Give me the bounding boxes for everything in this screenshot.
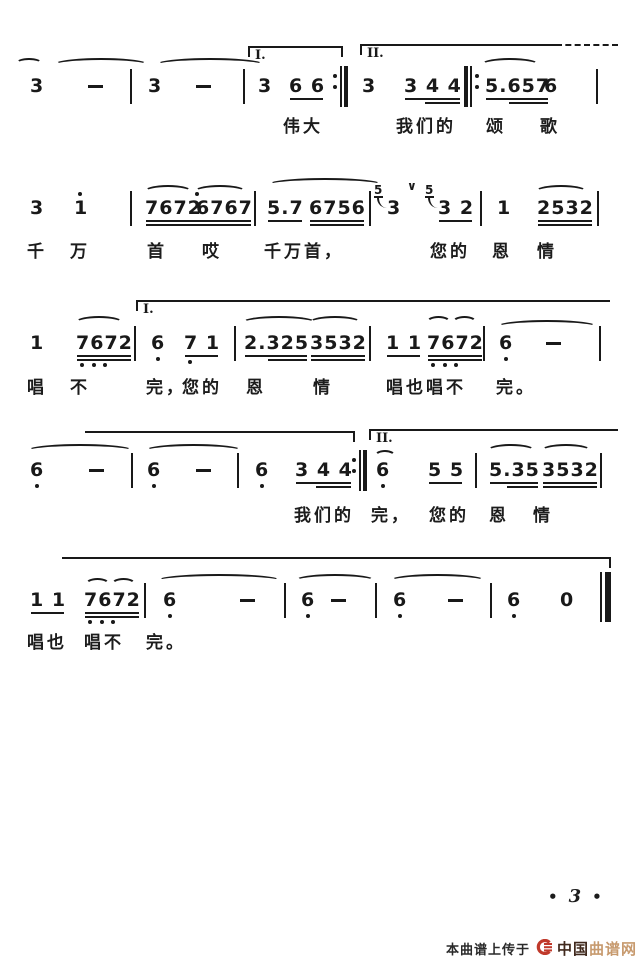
slur — [390, 574, 485, 587]
note: 6 — [147, 460, 161, 481]
note: 6 — [499, 333, 513, 354]
note: 6 — [393, 590, 407, 611]
barline — [475, 453, 477, 488]
beam-group: 3 4 4 — [295, 460, 353, 481]
volta-label: II. — [376, 432, 393, 445]
beam-group: 6767 — [196, 198, 253, 219]
volta-bracket: II. — [369, 429, 618, 431]
barline — [237, 453, 239, 488]
barline — [369, 326, 371, 361]
volta-label: II. — [367, 47, 384, 60]
lyric-syllable: 情 — [537, 237, 557, 262]
note: 3 — [148, 76, 162, 97]
note: 1 — [74, 198, 88, 219]
barline — [490, 583, 492, 618]
note: 3 — [362, 76, 376, 97]
dash-note — [196, 85, 211, 88]
lyric-syllable: 歌 — [540, 112, 560, 137]
brand-name-suffix: 曲谱网 — [589, 938, 637, 959]
barline — [234, 326, 236, 361]
slur — [157, 574, 281, 587]
slur — [309, 316, 361, 329]
lyric-syllable: 恩 — [489, 501, 509, 526]
beam-group: 6 6 — [289, 76, 325, 97]
slur — [54, 58, 148, 71]
lyric-syllable: 唱 — [27, 373, 47, 398]
dash-note — [240, 599, 255, 602]
beam-group: 7672 — [84, 590, 141, 611]
dash-note — [448, 599, 463, 602]
barline — [144, 583, 146, 618]
beam-group: 7 1 — [184, 333, 220, 354]
beam-group: 7672 — [427, 333, 484, 354]
barline — [369, 191, 371, 226]
beam-group: 3532 — [542, 460, 599, 481]
barline — [254, 191, 256, 226]
note: 6 — [151, 333, 165, 354]
lyric-syllable: 完。 — [146, 628, 186, 653]
dash-note — [331, 599, 346, 602]
slur — [295, 574, 375, 587]
barline — [600, 453, 602, 488]
lyric-syllable: 我们的 — [294, 501, 354, 526]
dash-note — [89, 469, 104, 472]
beam-group: 3532 — [310, 333, 367, 354]
lyric-syllable: 您的 — [429, 501, 469, 526]
lyric-syllable: 唱也 — [27, 628, 67, 653]
note: 6 — [163, 590, 177, 611]
note: 6 — [30, 460, 44, 481]
brand-name-cn: 中国 — [557, 938, 589, 959]
note: 6 — [507, 590, 521, 611]
slur — [268, 178, 382, 191]
page-number-dot-right: • — [592, 890, 602, 905]
grace-note: 5 — [425, 184, 433, 196]
note: 6 — [376, 460, 390, 481]
lyric-syllable: 完， — [371, 501, 411, 526]
lyric-syllable: 情 — [313, 373, 333, 398]
barline — [134, 326, 136, 361]
beam-group: 1 1 — [386, 333, 422, 354]
note: 1 — [30, 333, 44, 354]
watermark: 本曲谱上传于 中国 曲谱网 — [446, 938, 637, 959]
lyric-syllable: 千万首， — [264, 237, 344, 262]
barline — [131, 453, 133, 488]
beam-group: 7672 — [76, 333, 133, 354]
note: 3 — [30, 198, 44, 219]
beam-group: 2.325 — [244, 333, 309, 354]
barline — [130, 191, 132, 226]
lyric-syllable: 千 — [27, 237, 47, 262]
note: 1 — [497, 198, 511, 219]
slur — [27, 444, 133, 457]
volta-bracket: II. — [360, 44, 556, 46]
volta-bracket: I. — [136, 300, 610, 302]
slur — [487, 444, 535, 457]
page-number: • 3 • — [548, 888, 602, 906]
barline — [597, 191, 599, 226]
lyric-syllable: 唱也唱不 — [386, 373, 466, 398]
volta-bracket-dashed-tail — [556, 44, 618, 46]
sheet-music-page: { "page": {"dot": "\u2022", "number": "3… — [0, 0, 639, 968]
slur — [426, 316, 451, 329]
beam-group: 3 4 4 — [404, 76, 462, 97]
watermark-text: 本曲谱上传于 — [446, 939, 530, 958]
site-logo-icon — [536, 939, 554, 959]
beam-group: 6756 — [309, 198, 366, 219]
note: 6 — [544, 76, 558, 97]
barline — [480, 191, 482, 226]
score-canvas: I.II.3336 633 4 45.6576伟大我们的颂歌3176726767… — [0, 0, 639, 968]
grace-note: 5 — [374, 184, 382, 196]
dash-note — [546, 342, 561, 345]
lyric-syllable: 颂 — [486, 112, 506, 137]
dash-note — [88, 85, 103, 88]
note: 0 — [560, 590, 574, 611]
page-number-dot-left: • — [548, 890, 558, 905]
beam-group: 3 2 — [438, 198, 474, 219]
note: 6 — [255, 460, 269, 481]
volta-label: I. — [143, 303, 154, 316]
lyric-syllable: 完， — [146, 373, 186, 398]
barline — [243, 69, 245, 104]
volta-label: I. — [255, 49, 266, 62]
barline — [130, 69, 132, 104]
slur — [242, 316, 316, 329]
lyric-syllable: 首 — [147, 237, 167, 262]
barline — [284, 583, 286, 618]
lyric-syllable: 恩 — [492, 237, 512, 262]
lyric-syllable: 哎 — [202, 237, 222, 262]
slur — [541, 444, 591, 457]
slur — [481, 58, 539, 71]
lyric-syllable: 完。 — [496, 373, 536, 398]
beam-group: 2532 — [537, 198, 594, 219]
slur — [75, 316, 123, 329]
beam-group: 5.35 — [489, 460, 540, 481]
lyric-syllable: 伟大 — [283, 112, 323, 137]
slur — [452, 316, 477, 329]
lyric-syllable: 万 — [70, 237, 90, 262]
lyric-syllable: 唱不 — [84, 628, 124, 653]
barline — [375, 583, 377, 618]
slur — [16, 58, 42, 68]
lyric-syllable: 不 — [70, 373, 90, 398]
beam-group: 1 1 — [30, 590, 66, 611]
beam-group: 5 5 — [428, 460, 464, 481]
lyric-syllable: 情 — [533, 501, 553, 526]
volta-bracket — [85, 431, 355, 433]
lyric-syllable: 我们的 — [396, 112, 456, 137]
slur — [145, 444, 242, 457]
lyric-syllable: 您的 — [430, 237, 470, 262]
breath-mark: ∨ — [407, 180, 417, 192]
note: 3 — [258, 76, 272, 97]
page-number-value: 3 — [569, 888, 582, 906]
lyric-syllable: 您的 — [182, 373, 222, 398]
dash-note — [196, 469, 211, 472]
barline — [599, 326, 601, 361]
beam-group: 5.7 — [267, 198, 304, 219]
note: 6 — [301, 590, 315, 611]
slur — [156, 58, 264, 71]
note: 3 — [30, 76, 44, 97]
beam-group: 5.657 — [485, 76, 550, 97]
note: 3 — [387, 198, 401, 219]
beam-group: 7672 — [145, 198, 202, 219]
barline — [483, 326, 485, 361]
volta-bracket: I. — [248, 46, 343, 48]
barline — [596, 69, 598, 104]
volta-bracket — [62, 557, 611, 559]
lyric-syllable: 恩 — [246, 373, 266, 398]
